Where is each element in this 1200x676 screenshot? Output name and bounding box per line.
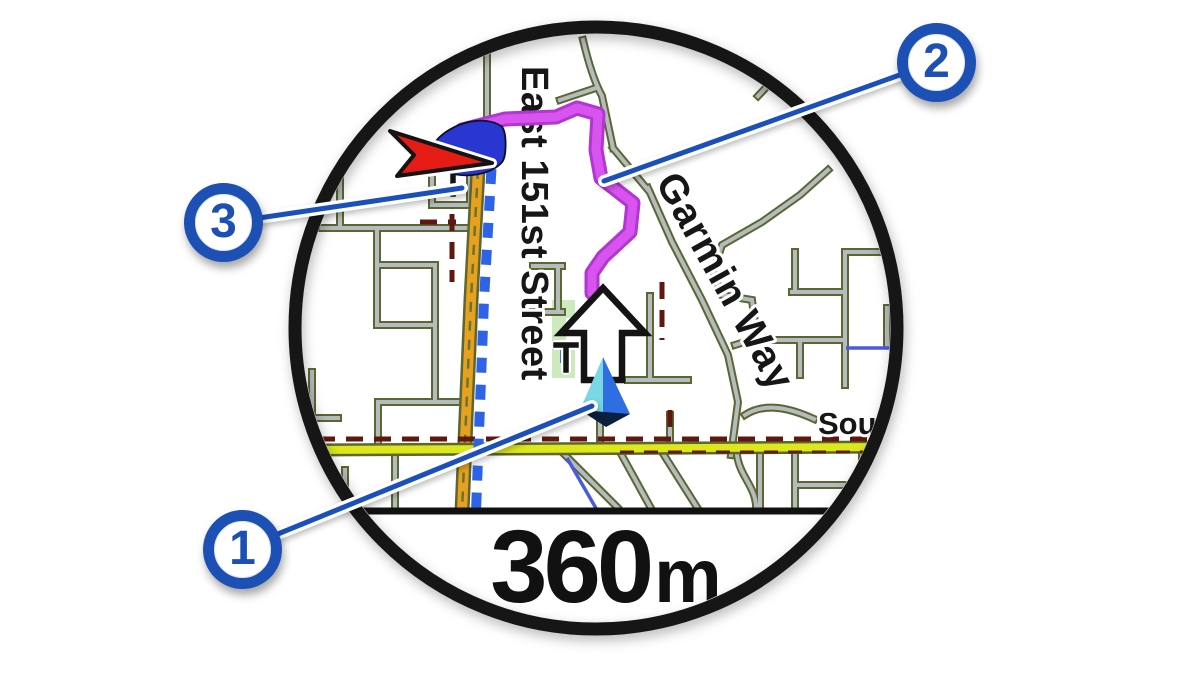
callout-2-badge: 2 xyxy=(897,23,976,102)
callout-1-badge: 1 xyxy=(203,510,282,589)
road-yellow xyxy=(315,447,890,450)
figure-watch-map: East 151st Street Garmin Way Sout xyxy=(0,0,1200,676)
callout-3-badge: 3 xyxy=(184,183,263,262)
watch-map-svg: East 151st Street Garmin Way Sout xyxy=(0,0,1200,676)
